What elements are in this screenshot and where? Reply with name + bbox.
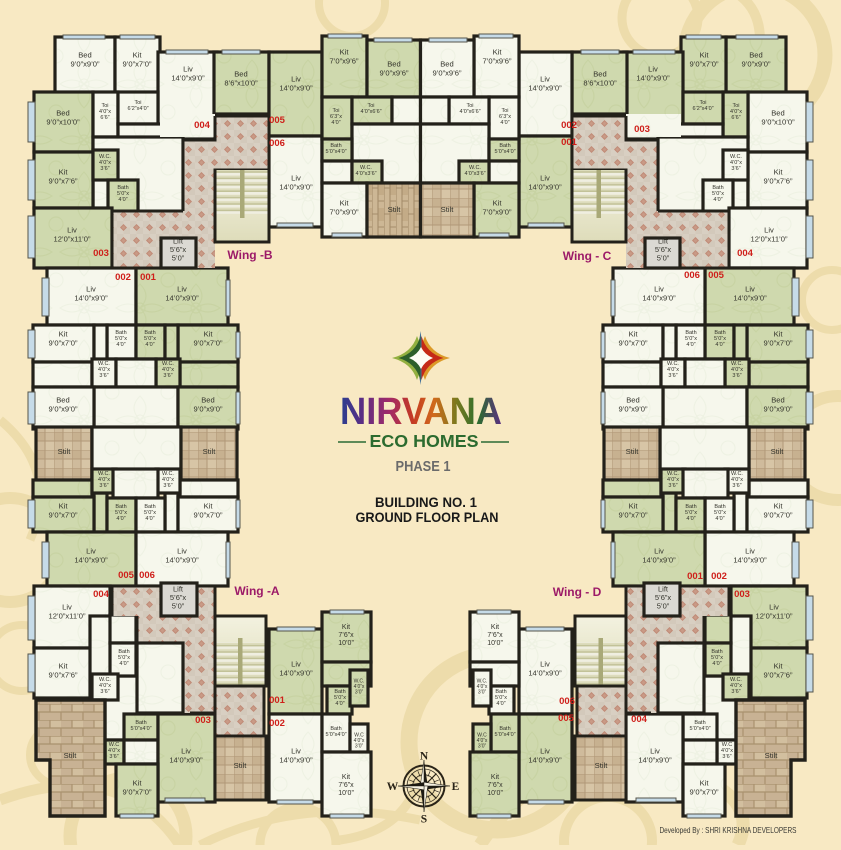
svg-text:Stilt: Stilt: [64, 751, 78, 760]
svg-text:002: 002: [269, 718, 285, 729]
svg-text:W.C.4’0”x3’6”: W.C.4’0”x3’6”: [99, 677, 111, 695]
svg-text:Bath5’0”x4’0”: Bath5’0”x4’0”: [714, 330, 726, 348]
svg-text:E: E: [452, 781, 460, 793]
svg-text:006: 006: [559, 696, 575, 707]
svg-text:W.C.4’0”x3’6”: W.C.4’0”x3’6”: [730, 677, 742, 695]
svg-text:006: 006: [684, 270, 700, 281]
svg-text:Bath5’0”x4’0”: Bath5’0”x4’0”: [334, 689, 346, 707]
svg-text:005: 005: [269, 115, 286, 126]
svg-text:Bath5’0”x4’0”: Bath5’0”x4’0”: [115, 330, 127, 348]
svg-text:W.C.4’0”x3’6”: W.C.4’0”x3’6”: [667, 361, 679, 379]
svg-text:Wing - D: Wing - D: [553, 585, 602, 599]
svg-text:005: 005: [118, 570, 135, 581]
svg-text:001: 001: [687, 571, 704, 582]
svg-text:W.C4’0”x3’6”: W.C4’0”x3’6”: [108, 742, 120, 760]
svg-text:003: 003: [195, 715, 211, 726]
svg-text:ECO HOMES: ECO HOMES: [370, 431, 479, 451]
svg-text:W.C.4’0”x3’6”: W.C.4’0”x3’6”: [667, 471, 679, 489]
svg-text:W: W: [387, 781, 399, 793]
svg-text:Developed By : SHRI KRISHNA DE: Developed By : SHRI KRISHNA DEVELOPERS: [660, 825, 797, 835]
svg-text:005: 005: [708, 270, 725, 281]
svg-text:PHASE 1: PHASE 1: [396, 458, 451, 475]
svg-text:Bath5’0”x4’0”: Bath5’0”x4’0”: [144, 504, 156, 522]
svg-text:Stilt: Stilt: [595, 761, 609, 770]
svg-text:Wing -A: Wing -A: [234, 584, 280, 598]
svg-text:002: 002: [115, 272, 131, 283]
svg-text:Bath5’0”x4’0”: Bath5’0”x4’0”: [685, 330, 697, 348]
svg-text:W.C.4’0”x3’6”: W.C.4’0”x3’6”: [731, 471, 743, 489]
svg-text:Bath5’0”x4’0”: Bath5’0”x4’0”: [712, 185, 724, 203]
svg-text:BUILDING NO. 1: BUILDING NO. 1: [375, 494, 477, 510]
svg-text:Bath5’0”x4’0”: Bath5’0”x4’0”: [118, 649, 130, 667]
svg-text:006: 006: [139, 570, 155, 581]
svg-text:Wing - C: Wing - C: [563, 249, 612, 263]
svg-text:GROUND FLOOR PLAN: GROUND FLOOR PLAN: [356, 509, 499, 525]
svg-text:004: 004: [737, 248, 754, 259]
svg-text:W.C.4’0”x3’6”: W.C.4’0”x3’6”: [162, 361, 174, 379]
svg-text:Stilt: Stilt: [58, 447, 72, 456]
svg-text:Stilt: Stilt: [441, 205, 455, 214]
svg-text:002: 002: [711, 571, 727, 582]
svg-text:Stilt: Stilt: [203, 447, 217, 456]
svg-text:W.C.4’0”x3’6”: W.C.4’0”x3’6”: [730, 154, 742, 172]
svg-text:Bath5’0”x4’0”: Bath5’0”x4’0”: [117, 185, 129, 203]
svg-text:004: 004: [93, 589, 110, 600]
svg-text:W.C.4’0”x3’6”: W.C.4’0”x3’6”: [162, 471, 174, 489]
svg-text:Bath5’0”x4’0”: Bath5’0”x4’0”: [714, 504, 726, 522]
svg-text:W.C.4’0”x3’6”: W.C.4’0”x3’6”: [98, 471, 110, 489]
svg-text:003: 003: [634, 124, 650, 135]
svg-text:W.C.4’0”x3’6”: W.C.4’0”x3’6”: [98, 361, 110, 379]
svg-text:Bath5’0”x4’0”: Bath5’0”x4’0”: [115, 504, 127, 522]
svg-text:006: 006: [269, 138, 285, 149]
svg-text:003: 003: [734, 589, 750, 600]
svg-text:W.C.4’0”x3’6”: W.C.4’0”x3’6”: [99, 154, 111, 172]
svg-text:W.C4’0”x3’6”: W.C4’0”x3’6”: [721, 742, 733, 760]
svg-text:W.C.4’0”x3’6”: W.C.4’0”x3’6”: [731, 361, 743, 379]
svg-text:Bath5’0”x4’0”: Bath5’0”x4’0”: [144, 330, 156, 348]
svg-text:Stilt: Stilt: [765, 751, 779, 760]
svg-text:005: 005: [558, 713, 575, 724]
svg-text:Bath5’0”x4’0”: Bath5’0”x4’0”: [711, 649, 723, 667]
svg-text:S: S: [421, 814, 427, 826]
svg-text:001: 001: [140, 272, 157, 283]
svg-text:004: 004: [631, 714, 648, 725]
svg-text:Wing -B: Wing -B: [227, 248, 273, 262]
svg-text:N: N: [420, 751, 429, 763]
svg-text:Bath5’0”x4’0”: Bath5’0”x4’0”: [685, 504, 697, 522]
svg-text:Stilt: Stilt: [388, 205, 402, 214]
svg-text:004: 004: [194, 120, 211, 131]
svg-text:003: 003: [93, 248, 109, 259]
svg-text:002: 002: [561, 120, 577, 131]
svg-text:Bath5’0”x4’0”: Bath5’0”x4’0”: [495, 689, 507, 707]
svg-text:001: 001: [561, 137, 578, 148]
svg-text:001: 001: [269, 695, 286, 706]
svg-text:Stilt: Stilt: [626, 447, 640, 456]
svg-text:Stilt: Stilt: [771, 447, 785, 456]
svg-text:Stilt: Stilt: [234, 761, 248, 770]
svg-text:NIRVANA: NIRVANA: [340, 391, 502, 433]
